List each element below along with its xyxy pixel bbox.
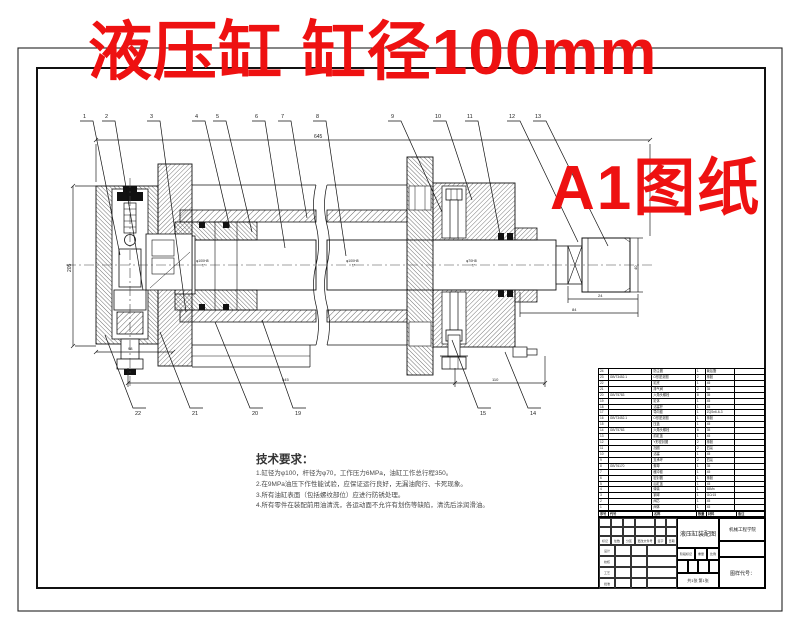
bom-cell: 1 <box>696 434 706 439</box>
stage-box <box>677 560 688 573</box>
bom-cell <box>609 505 652 510</box>
field-design: 设计 <box>599 545 615 556</box>
bom-cell: 四氟 <box>706 446 736 451</box>
bom-cell: 8 <box>599 464 609 469</box>
signature-grid: 设计 校核 工艺 批准 <box>599 545 677 589</box>
bom-cell: 45 <box>706 499 736 504</box>
bom-cell: 1 <box>696 470 706 475</box>
bom-cell: 45 <box>706 482 736 487</box>
bom-cell: 3 <box>599 493 609 498</box>
bom-cell <box>735 369 764 374</box>
weight-label: 重量 <box>695 548 707 560</box>
bom-cell: 螺母 <box>652 464 695 469</box>
dim-height: 205 <box>67 263 73 272</box>
bom-cell: 聚氨酯 <box>706 369 736 374</box>
bom-cell <box>735 493 764 498</box>
bom-cell: GB/T3452.1 <box>609 416 652 421</box>
bom-cell: 序号 <box>599 512 609 516</box>
red-badge: A1图纸 <box>550 158 761 220</box>
bom-cell: 缸底 <box>652 381 695 386</box>
bom-cell: 1 <box>696 505 706 510</box>
bom-cell <box>735 470 764 475</box>
dim-rod-b: 84 <box>572 307 577 312</box>
dim-bottom-left: 98 <box>128 346 133 351</box>
bom-cell <box>735 405 764 410</box>
bom-cell: 1 <box>696 369 706 374</box>
bom-cell <box>609 452 652 457</box>
bom-cell: 18 <box>599 405 609 410</box>
bom-cell: 1 <box>696 405 706 410</box>
bom-cell: Y形密封圈 <box>652 440 695 445</box>
dim-rod-d: 40 <box>633 265 638 270</box>
fit-bore-label-b: φ100H8 <box>346 259 359 263</box>
bom-cell: 缓冲套 <box>652 470 695 475</box>
bom-cell: 六角头螺栓 <box>652 428 695 433</box>
bom-cell: 45 <box>706 399 736 404</box>
bom-cell: 15 <box>599 422 609 427</box>
bom-cell: 阀体 <box>652 505 695 510</box>
bom-cell: 活塞 <box>652 452 695 457</box>
fit-bore-label-b2: f7 <box>352 264 355 268</box>
callout-numbers-bottom: 22 21 20 19 15 14 <box>135 411 536 417</box>
bom-cell: 1 <box>696 499 706 504</box>
callout-label: 13 <box>535 114 541 120</box>
bom-cell: 24 <box>599 369 609 374</box>
bom-cell <box>609 446 652 451</box>
stage-box <box>698 560 709 573</box>
callout-label: 22 <box>135 411 141 417</box>
bom-cell: 35 <box>706 464 736 469</box>
bom-cell <box>735 422 764 427</box>
field-process: 工艺 <box>599 567 615 578</box>
bom-cell: 1 <box>696 493 706 498</box>
bom-cell: 1 <box>696 422 706 427</box>
bom-cell: 13 <box>599 434 609 439</box>
dim-rod-a: 24 <box>598 293 603 298</box>
bom-cell: 四氟 <box>706 458 736 463</box>
callout-label: 12 <box>509 114 515 120</box>
dim-bottom-right: 110 <box>492 377 499 382</box>
callout-label: 7 <box>281 114 284 120</box>
bom-cell: 21 <box>599 387 609 392</box>
bom-cell: 45 <box>706 405 736 410</box>
field-date: 日期 <box>666 536 677 545</box>
stage-box <box>688 560 699 573</box>
bom-cell <box>609 369 652 374</box>
bom-cell: ZQSn6-6-3 <box>706 410 736 415</box>
callout-label: 3 <box>150 114 153 120</box>
bom-cell <box>735 482 764 487</box>
bom-cell: 45 <box>706 434 736 439</box>
bom-cell: O形密封圈 <box>652 375 695 380</box>
bom-cell: 橡胶 <box>706 476 736 481</box>
bom-cell: 6 <box>599 476 609 481</box>
callout-label: 15 <box>480 411 486 417</box>
bom-cell: O形密封圈 <box>652 416 695 421</box>
bom-cell: 6 <box>696 428 706 433</box>
empty-cell <box>719 541 766 557</box>
bom-cell: 缸体 <box>652 399 695 404</box>
bom-cell <box>609 476 652 481</box>
field-change: 更改文件号 <box>635 536 655 545</box>
fit-bore-label2: f7 <box>202 264 205 268</box>
bom-cell: 2 <box>696 440 706 445</box>
callout-label: 6 <box>255 114 258 120</box>
bom-cell: 橡胶 <box>706 416 736 421</box>
bom-cell <box>735 476 764 481</box>
bom-cell: 压盖 <box>652 422 695 427</box>
callout-label: 4 <box>195 114 198 120</box>
bom-cell <box>609 399 652 404</box>
bom-cell: GB/T3452.1 <box>609 375 652 380</box>
callout-label: 1 <box>83 114 86 120</box>
org-cell: 机械工程学院 <box>719 518 766 541</box>
bom-cell: 排气阀 <box>652 387 695 392</box>
bom-cell <box>735 410 764 415</box>
bom-cell: 16 <box>599 416 609 421</box>
tech-heading: 技术要求： <box>256 451 586 467</box>
bom-cell: 钢球 <box>652 493 695 498</box>
bom-cell: 材料 <box>707 512 737 516</box>
bom-cell: 阀芯 <box>652 499 695 504</box>
bom-cell: 7 <box>599 470 609 475</box>
bom-cell <box>609 410 652 415</box>
bom-cell: 密封圈 <box>652 476 695 481</box>
bom-cell <box>609 434 652 439</box>
bom-cell: 22 <box>599 381 609 386</box>
tech-item: 4.所有零件在装配前用油清洗，各运动面不允许有划伤等缺陷，清洗后涂润滑油。 <box>256 501 586 512</box>
bom-cell: 35 <box>706 428 736 433</box>
bom-cell: 2 <box>599 499 609 504</box>
bom-cell: 45 <box>706 452 736 457</box>
bom-cell <box>735 434 764 439</box>
sheets-cell: 共1张 第1张 <box>677 573 719 589</box>
revision-grid: 标记 处数 分区 更改文件号 签字 日期 <box>599 518 677 545</box>
bom-cell: 1 <box>696 464 706 469</box>
bom-cell: 名称 <box>653 512 697 516</box>
bom-cell: 17 <box>599 410 609 415</box>
title-block: 标记 处数 分区 更改文件号 签字 日期 设计 校核 工艺 批准 液压缸装配图 … <box>598 517 765 588</box>
red-title: 液压缸 缸径100mm <box>88 20 657 84</box>
bom-cell <box>735 416 764 421</box>
bom-cell: GB/T6170 <box>609 464 652 469</box>
bom-cell: 弹簧 <box>652 487 695 492</box>
bom-cell: 2 <box>696 375 706 380</box>
field-mark: 标记 <box>599 536 611 545</box>
bom-cell <box>735 375 764 380</box>
fit-rod-label: φ70H8 <box>466 259 477 263</box>
callout-numbers-top: 1 2 3 4 5 6 7 8 9 10 11 12 13 <box>83 114 541 120</box>
bom-cell <box>609 458 652 463</box>
callout-label: 5 <box>216 114 219 120</box>
drawing-page: 645 205 98 545 110 24 84 40 φ100H8 f7 φ1… <box>0 0 800 640</box>
fit-bore-label: φ100H8 <box>196 259 209 263</box>
bom-cell: 支承环 <box>652 458 695 463</box>
stage-label: 阶段标记 <box>677 548 695 560</box>
bom-cell: 10 <box>599 452 609 457</box>
tech-item: 3.所有油缸表面（包括螺纹部位）应进行防锈处理。 <box>256 491 586 502</box>
bom-cell <box>735 464 764 469</box>
bom-cell <box>735 499 764 504</box>
bom-cell <box>735 458 764 463</box>
bom-cell: 19 <box>599 399 609 404</box>
bom-cell: 备注 <box>737 512 766 516</box>
bom-cell: 1 <box>696 410 706 415</box>
field-sign: 签字 <box>655 536 666 545</box>
tech-item: 1.缸径为φ100，杆径为φ70，工作压力6MPa，油缸工作总行程350。 <box>256 469 586 480</box>
bom-cell: 20 <box>599 393 609 398</box>
bom-cell <box>609 470 652 475</box>
bom-cell: 5 <box>599 482 609 487</box>
bom-cell <box>609 387 652 392</box>
bom-cell: 8 <box>696 393 706 398</box>
bom-cell <box>609 405 652 410</box>
bom-cell: 1 <box>696 416 706 421</box>
bom-cell <box>609 493 652 498</box>
bom-cell: GCr15 <box>706 493 736 498</box>
bom-cell: 4 <box>599 487 609 492</box>
dim-overall: 645 <box>314 134 323 140</box>
bom-table: 24防尘圈1聚氨酯23GB/T3452.1O形密封圈2橡胶22缸底14521排气… <box>598 368 765 511</box>
callout-label: 11 <box>467 114 473 120</box>
bom-cell: 2 <box>696 446 706 451</box>
bom-cell: 9 <box>599 458 609 463</box>
bom-cell: 活塞杆 <box>652 405 695 410</box>
bom-cell: 45 <box>706 470 736 475</box>
field-check: 校核 <box>599 556 615 567</box>
field-approve: 批准 <box>599 578 615 589</box>
bom-cell: 2 <box>696 458 706 463</box>
bom-header: 序号代号名称数量材料备注 <box>599 512 766 516</box>
bom-cell: GB/T5783 <box>609 393 652 398</box>
bom-cell: 导向套 <box>652 410 695 415</box>
bom-cell: 1 <box>696 482 706 487</box>
bom-cell: 45 <box>706 381 736 386</box>
bom-cell: GB/T5783 <box>609 428 652 433</box>
rear-cap-assembly <box>96 164 192 375</box>
bom-cell <box>609 381 652 386</box>
callout-label: 21 <box>192 411 198 417</box>
bom-cell: 1 <box>599 505 609 510</box>
bom-cell: 1 <box>696 487 706 492</box>
bom-cell: 1 <box>696 476 706 481</box>
bom-cell: 数量 <box>697 512 707 516</box>
bom-cell <box>735 440 764 445</box>
bom-cell: 橡胶 <box>706 375 736 380</box>
bom-cell: 45 <box>706 505 736 510</box>
bom-cell: 35 <box>706 387 736 392</box>
bom-cell: 35 <box>706 393 736 398</box>
bom-cell <box>735 387 764 392</box>
bom-cell: 2 <box>696 387 706 392</box>
callout-label: 2 <box>105 114 108 120</box>
drawing-title-cell: 液压缸装配图 <box>677 518 719 548</box>
bom-cell <box>735 399 764 404</box>
fit-rod-label2: f7 <box>472 264 475 268</box>
bom-cell <box>609 422 652 427</box>
bom-cell <box>735 505 764 510</box>
bom-cell: 65Mn <box>706 487 736 492</box>
bom-cell: 1 <box>696 399 706 404</box>
bom-cell <box>609 440 652 445</box>
bom-cell: 12 <box>599 440 609 445</box>
callout-label: 19 <box>295 411 301 417</box>
bom-cell <box>609 499 652 504</box>
bom-cell <box>735 381 764 386</box>
bom-cell: 六角头螺栓 <box>652 393 695 398</box>
callout-label: 10 <box>435 114 441 120</box>
stage-box <box>709 560 720 573</box>
bom-row: 1阀体145 <box>599 505 764 510</box>
callout-label: 14 <box>530 411 536 417</box>
bom-cell <box>735 452 764 457</box>
bom-cell: 14 <box>599 428 609 433</box>
bom-cell: 橡胶 <box>706 440 736 445</box>
bom-cell: 1 <box>696 452 706 457</box>
bom-cell: 23 <box>599 375 609 380</box>
bom-cell <box>735 446 764 451</box>
bom-cell <box>735 393 764 398</box>
bom-cell <box>735 487 764 492</box>
bom-cell: 45 <box>706 422 736 427</box>
bom-cell: 1 <box>696 381 706 386</box>
tech-item: 2.在9MPa油压下作性能试验，应保证运行良好，无漏油爬行、卡死现象。 <box>256 480 586 491</box>
bom-cell: 前缸盖 <box>652 434 695 439</box>
field-zone: 分区 <box>623 536 635 545</box>
field-count: 处数 <box>611 536 623 545</box>
bom-cell: 代号 <box>609 512 653 516</box>
bom-cell: 后缸盖 <box>652 482 695 487</box>
callout-label: 8 <box>316 114 319 120</box>
scale-label: 比例 <box>707 548 719 560</box>
bom-cell <box>609 487 652 492</box>
drawing-code-cell: 图样代号： <box>719 557 766 589</box>
bom-cell: 挡圈 <box>652 446 695 451</box>
technical-requirements: 技术要求： 1.缸径为φ100，杆径为φ70，工作压力6MPa，油缸工作总行程3… <box>256 451 586 512</box>
callout-label: 9 <box>391 114 394 120</box>
bom-cell: 11 <box>599 446 609 451</box>
bom-cell <box>609 482 652 487</box>
bom-cell: 防尘圈 <box>652 369 695 374</box>
callout-label: 20 <box>252 411 258 417</box>
bom-cell <box>735 428 764 433</box>
